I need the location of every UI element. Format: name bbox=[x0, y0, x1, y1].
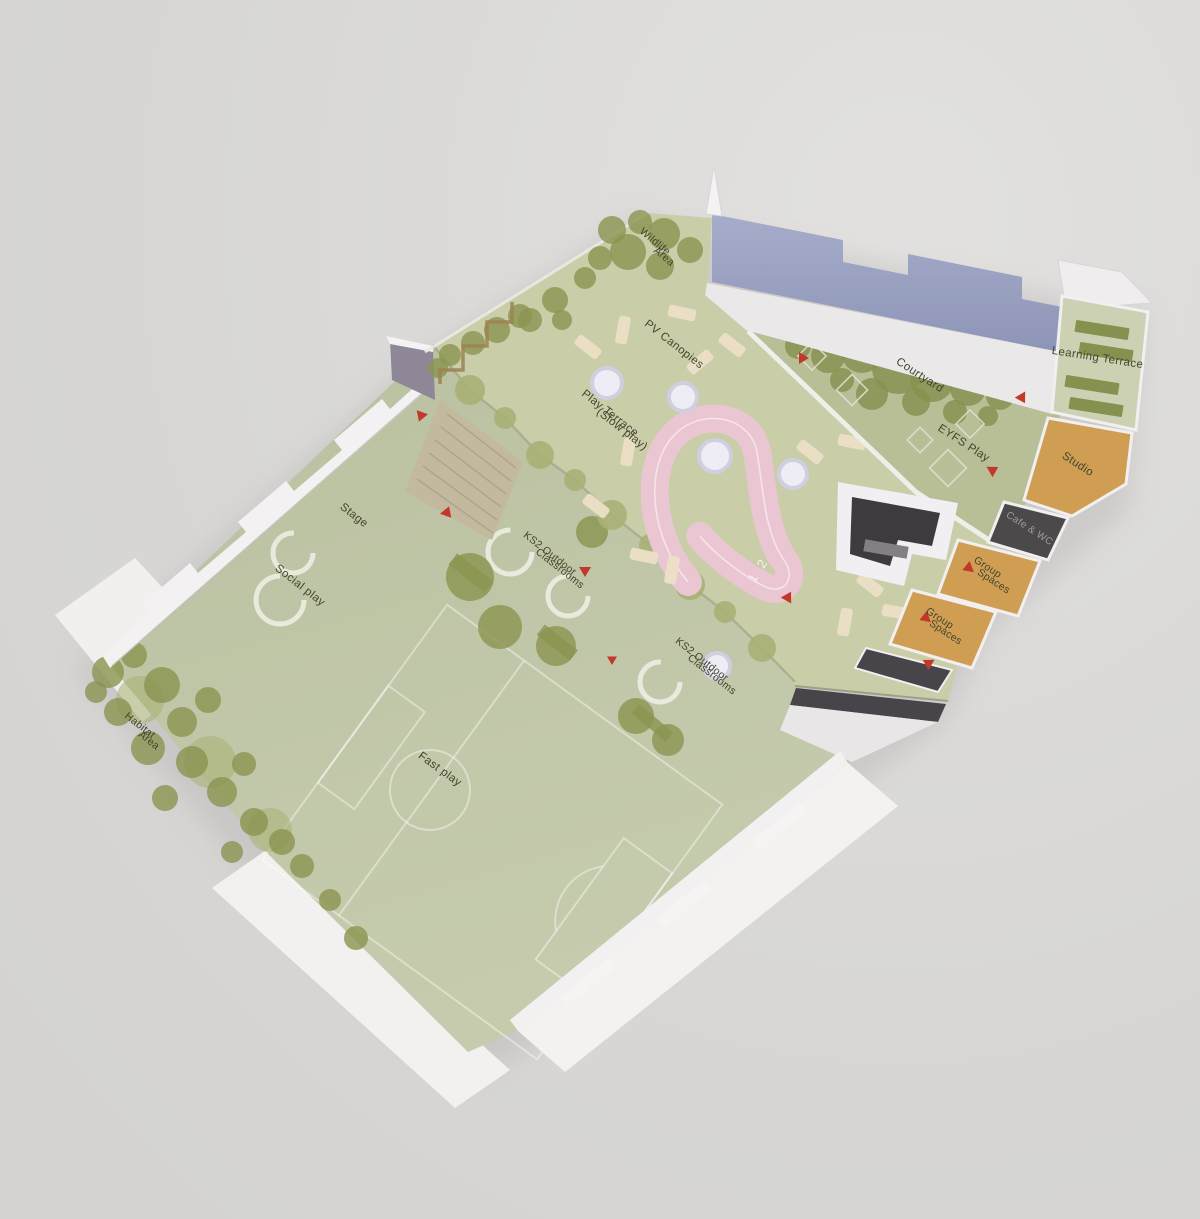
model-photo: 1 2 bbox=[0, 0, 1200, 1219]
site-model-scene: 1 2 bbox=[0, 0, 1200, 1219]
north-wall-fin bbox=[706, 166, 722, 216]
